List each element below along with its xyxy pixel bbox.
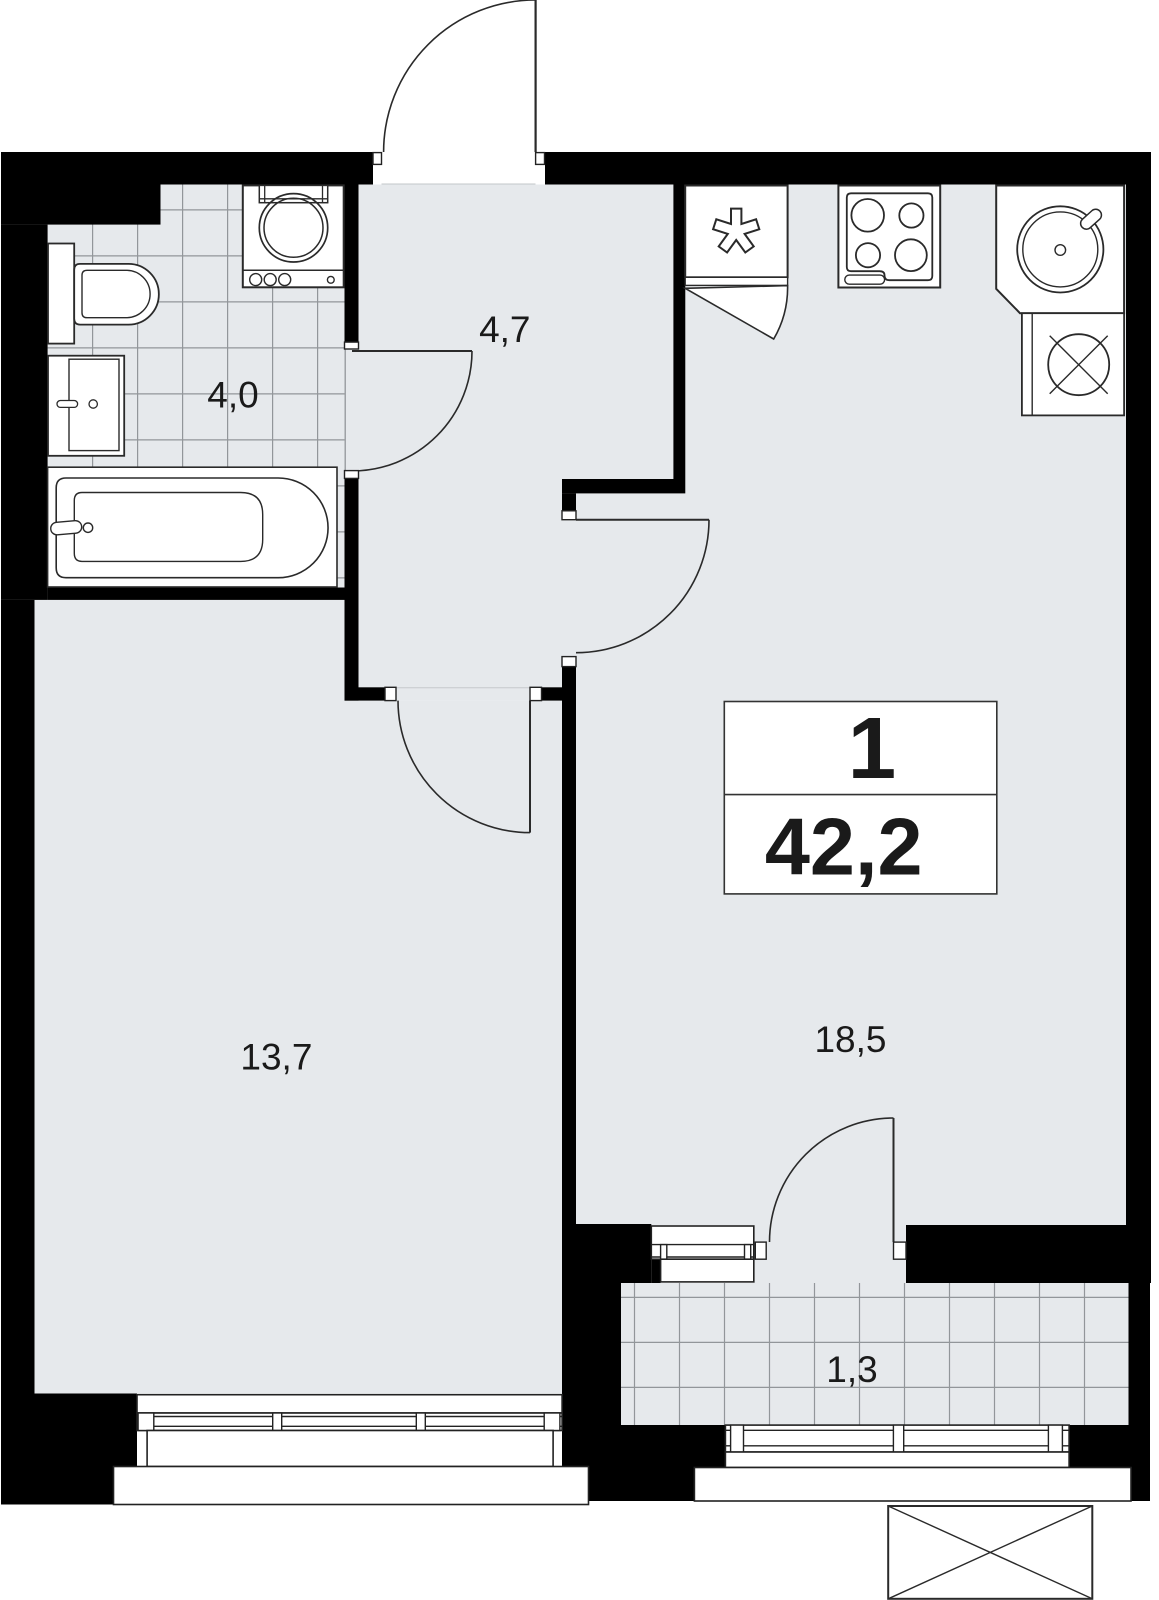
svg-text:4,7: 4,7 — [479, 309, 530, 350]
svg-text:13,7: 13,7 — [240, 1037, 312, 1078]
svg-text:1: 1 — [848, 700, 896, 797]
svg-text:1,3: 1,3 — [826, 1349, 877, 1390]
svg-text:42,2: 42,2 — [765, 803, 923, 893]
svg-text:4,0: 4,0 — [207, 375, 258, 416]
svg-text:18,5: 18,5 — [814, 1019, 886, 1060]
